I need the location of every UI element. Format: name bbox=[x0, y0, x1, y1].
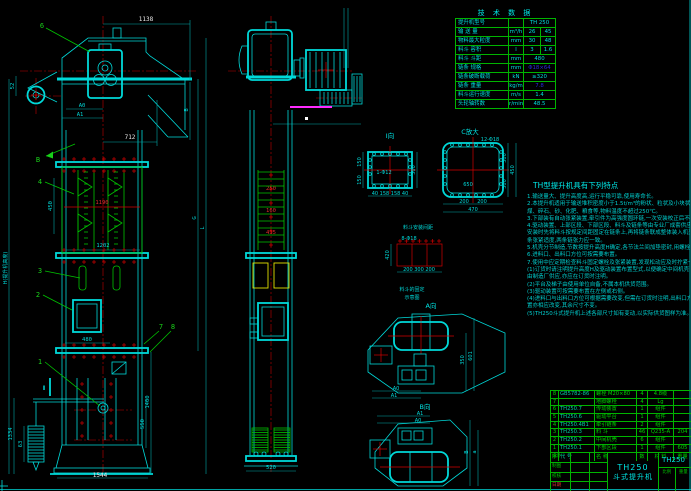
tech-label: 链条 规格 bbox=[456, 64, 509, 72]
bom-no: 4 bbox=[551, 422, 559, 429]
cad-drawing-canvas: 1138 712 A0 A1 52 B G L H(提升机高度) 450 119… bbox=[0, 0, 691, 491]
tech-table-row: 料斗 斗距mm480 bbox=[456, 54, 555, 63]
bom-qty: 4 bbox=[637, 391, 648, 398]
tech-unit: kg/m bbox=[509, 82, 524, 90]
title-block-signature-grid: 设计制图校核日期 bbox=[551, 453, 608, 491]
bom-row: 6TH250.7传动装置1组件 bbox=[551, 405, 691, 413]
title-block-sign-row: 日期 bbox=[551, 482, 607, 491]
detail-c-dim: 200 bbox=[459, 199, 469, 205]
dim-52: 52 bbox=[10, 83, 16, 90]
scale-label: 比例 bbox=[659, 468, 676, 491]
technical-data-title: 技 术 数 据 bbox=[455, 8, 556, 18]
view-b-dim-a: a bbox=[472, 450, 478, 453]
detail-c-dim: 200 bbox=[477, 199, 487, 205]
balloon-4: 4 bbox=[38, 178, 42, 186]
sign-cell bbox=[571, 463, 590, 472]
bom-code bbox=[559, 399, 595, 406]
bom-material: 组件 bbox=[648, 422, 674, 429]
note-line: 2.本提升机适用于输送堆积密度小于1.5t/m³的粉状、粒状及小块状无磨琢性、半… bbox=[527, 201, 690, 208]
bom-name: 牵引链条 bbox=[595, 422, 637, 429]
tech-value: TH 250 bbox=[524, 19, 555, 27]
sign-cell bbox=[571, 473, 590, 482]
bom-material: 组件 bbox=[648, 414, 674, 421]
bom-no: 1 bbox=[551, 445, 559, 452]
tech-table-row: 输 送 量m³/h2645 bbox=[456, 27, 555, 36]
dim-height-h: H(提升机高度) bbox=[2, 252, 9, 285]
detail-i-dim: 150 bbox=[357, 175, 363, 185]
tech-table-row: 料斗运行速度m/s1.4 bbox=[456, 90, 555, 99]
tech-value: 30 bbox=[524, 37, 541, 45]
balloon-6: 6 bbox=[40, 22, 44, 30]
detail-c-dim: 450 bbox=[510, 165, 516, 175]
balloon-7: 7 bbox=[159, 323, 163, 331]
feature-notes-heading: TH型提升机具有下列特点 bbox=[533, 180, 690, 191]
bom-code: TH250.6 bbox=[559, 414, 595, 421]
bom-code: TH250.3 bbox=[559, 429, 595, 436]
tech-label: 输 送 量 bbox=[456, 28, 509, 36]
technical-data-table: 技 术 数 据 提升机型号TH 250输 送 量m³/h2645物料最大粒度mm… bbox=[455, 8, 556, 109]
title-block: 设计制图校核日期 TH250 斗式提升机 TH250 比例 重量 bbox=[550, 452, 691, 491]
bom-material: 组件 bbox=[648, 437, 674, 444]
sign-cell bbox=[590, 463, 608, 472]
dim-550: 550 bbox=[140, 419, 146, 429]
detail-i-dim: 150 bbox=[357, 157, 363, 167]
bom-no: 6 bbox=[551, 406, 559, 413]
balloon-3: 3 bbox=[38, 267, 42, 275]
product-name: 斗式提升机 bbox=[613, 472, 653, 482]
tech-unit: r/min bbox=[509, 100, 524, 108]
tech-value: 1.6 bbox=[541, 46, 555, 54]
tech-label: 头轮轴转数 bbox=[456, 100, 509, 108]
bom-no: 8 bbox=[551, 391, 559, 398]
bom-material: 4.8级 bbox=[648, 391, 674, 398]
bucket-fix-note-1: 料斗的固定 bbox=[399, 286, 424, 293]
sign-label: 设计 bbox=[551, 453, 571, 462]
bom-row: 7地脚螺栓4Lg bbox=[551, 398, 691, 406]
detail-c-hole-note: 12-Φ18 bbox=[481, 137, 499, 143]
bom-row: 4TH250.4B1牵引链条2组件 bbox=[551, 421, 691, 429]
view-b-dim-b: B bbox=[464, 450, 470, 454]
bom-qty: 46 bbox=[637, 429, 648, 436]
bom-material: Lg bbox=[648, 399, 674, 406]
detail-i-dim: 300 bbox=[411, 165, 417, 175]
bucket-pitch-label: 料斗安装间距 bbox=[403, 224, 433, 231]
bom-qty: 6 bbox=[637, 437, 648, 444]
tech-label: 物料最大粒度 bbox=[456, 37, 509, 45]
tech-unit: m/s bbox=[509, 91, 524, 99]
detail-c-dim: 470 bbox=[468, 207, 478, 213]
note-line: (5)TH250斗式提升机上述各部尺寸如有变动,以实际供货图样为准。 bbox=[527, 311, 690, 318]
note-line: 条张紧适度,两条链张力应一致。 bbox=[527, 238, 690, 245]
detail-c-dim: 650 bbox=[463, 182, 473, 188]
bill-of-materials: 8GB5782-86螺栓 M20×8044.8级7地脚螺栓4Lg6TH250.7… bbox=[550, 390, 691, 461]
bom-code: GB5782-86 bbox=[559, 391, 595, 398]
tech-value: 3 bbox=[524, 46, 541, 54]
title-block-sign-row: 校核 bbox=[551, 473, 607, 483]
tech-value: Φ18×64 bbox=[524, 64, 555, 72]
detail-i-label: Ⅰ向 bbox=[386, 131, 394, 140]
view-arrow-b: B bbox=[36, 156, 40, 164]
balloon-8: 8 bbox=[171, 323, 175, 331]
tech-unit: mm bbox=[509, 37, 524, 45]
bom-no: 5 bbox=[551, 414, 559, 421]
tech-value: 45 bbox=[541, 28, 555, 36]
title-block-name-cell: TH250 斗式提升机 bbox=[608, 453, 659, 491]
tech-unit: l bbox=[509, 46, 524, 54]
note-line: 由制造厂供应,亦应在订货时注明。 bbox=[527, 274, 690, 281]
tech-unit: m³/h bbox=[509, 28, 524, 36]
sign-cell bbox=[590, 473, 608, 482]
middle-elevation-view: 250 160 435 520 bbox=[228, 8, 362, 474]
tech-table-row: 料斗 容积l31.6 bbox=[456, 45, 555, 54]
dim-160: 160 bbox=[266, 208, 276, 214]
detail-views: Ⅰ向 1-Φ12 150 150 300 40 158 158 40 C放大 1… bbox=[357, 127, 516, 486]
bom-code: TH250.1 bbox=[559, 445, 595, 452]
tech-value: 7.8 bbox=[524, 82, 555, 90]
view-a-dim-350: 350 bbox=[460, 355, 466, 365]
tech-label: 料斗 容积 bbox=[456, 46, 509, 54]
tech-table-row: 链条 重量kg/m7.8 bbox=[456, 81, 555, 90]
tech-label: 料斗运行速度 bbox=[456, 91, 509, 99]
bom-row: 5TH250.6驱动平台1组件 bbox=[551, 413, 691, 421]
dim-head-width: 712 bbox=[125, 134, 136, 141]
view-a-dim-601: 601 bbox=[468, 351, 474, 361]
dim-base-width: 1544 bbox=[93, 472, 108, 479]
note-line: 安装时先将料斗按规定间距固定在链条上,再将链条联成整体装入机壳内,最后调整张紧装… bbox=[527, 230, 690, 237]
bom-name: 料 斗 bbox=[595, 429, 637, 436]
bom-row: 2TH250.2中间机壳6组件 bbox=[551, 436, 691, 444]
note-line: 7.使用中应定期检查料斗固定螺栓及张紧装置,发现松动应及时拧紧一次 bbox=[527, 260, 690, 267]
title-block-sign-row: 制图 bbox=[551, 463, 607, 473]
weight-label: 重量 bbox=[676, 468, 691, 491]
generated-hatch-marks bbox=[28, 52, 502, 459]
bom-code: TH250.4B1 bbox=[559, 422, 595, 429]
sign-label: 制图 bbox=[551, 463, 571, 472]
feature-notes-lines: 1.输送量大、提升高度高,运行平稳可靠,使用寿命长。2.本提升机适用于输送堆积密… bbox=[527, 194, 690, 318]
bom-no: 3 bbox=[551, 429, 559, 436]
sign-cell bbox=[571, 453, 590, 462]
view-b-dim-a1: A1 bbox=[417, 411, 424, 417]
bom-row: 1TH250.1下部区段1组件605 bbox=[551, 444, 691, 452]
dim-1400: 1400 bbox=[145, 395, 151, 408]
detail-i-hole-note: 1-Φ12 bbox=[376, 170, 391, 176]
note-line: 置亦相应改变,其余尺寸不变。 bbox=[527, 303, 690, 310]
bom-qty: 2 bbox=[637, 422, 648, 429]
dim-63: 63 bbox=[18, 441, 24, 448]
bom-name: 中间机壳 bbox=[595, 437, 637, 444]
bom-name: 螺栓 M20×80 bbox=[595, 391, 637, 398]
bom-material: Q235-A bbox=[648, 429, 674, 436]
tech-table-row: 链条 规格mmΦ18×64 bbox=[456, 63, 555, 72]
bom-weight: 605 bbox=[674, 445, 691, 452]
tech-value: 480 bbox=[524, 55, 555, 63]
dim-1190: 1190 bbox=[95, 200, 108, 206]
view-b-dim-a0: A0 bbox=[415, 418, 422, 424]
bucket-fix-note-2: 示意图 bbox=[404, 294, 419, 301]
dim-520: 520 bbox=[266, 465, 276, 471]
sign-cell bbox=[590, 453, 608, 462]
detail-i-dim: 40 158 158 40 bbox=[372, 191, 409, 197]
detail-c-label: C放大 bbox=[461, 127, 479, 136]
bom-qty: 4 bbox=[637, 399, 648, 406]
bom-no: 7 bbox=[551, 399, 559, 406]
tech-value: 48.5 bbox=[524, 100, 555, 108]
bom-name: 地脚螺栓 bbox=[595, 399, 637, 406]
dim-1202: 1202 bbox=[96, 243, 109, 249]
bom-row: 3TH250.3料 斗46Q235-A204 bbox=[551, 428, 691, 436]
bucket-pitch-bottom: 200 300 200 bbox=[403, 267, 435, 273]
dim-a1: A1 bbox=[77, 112, 84, 118]
note-line: 6.进料口、出料口方位可按需要布置。 bbox=[527, 252, 690, 259]
bom-qty: 1 bbox=[637, 414, 648, 421]
tech-unit: kN bbox=[509, 73, 524, 81]
tech-unit: mm bbox=[509, 55, 524, 63]
bom-weight bbox=[674, 437, 691, 444]
left-elevation-view: 1138 712 A0 A1 52 B G L H(提升机高度) 450 119… bbox=[2, 16, 206, 479]
tech-table-row: 头轮轴转数r/min48.5 bbox=[456, 99, 555, 108]
tech-table-row: 提升机型号TH 250 bbox=[456, 19, 555, 27]
tech-value: 26 bbox=[524, 28, 541, 36]
tech-label: 链条 重量 bbox=[456, 82, 509, 90]
tech-label: 料斗 斗距 bbox=[456, 55, 509, 63]
balloon-1: 1 bbox=[38, 358, 42, 366]
bom-qty: 1 bbox=[637, 445, 648, 452]
sign-label: 校核 bbox=[551, 473, 571, 482]
tech-value: 48 bbox=[541, 37, 555, 45]
tech-table-row: 链条破断载荷kN≥320 bbox=[456, 72, 555, 81]
bom-weight bbox=[674, 422, 691, 429]
feature-notes: TH型提升机具有下列特点 1.输送量大、提升高度高,运行平稳可靠,使用寿命长。2… bbox=[527, 180, 690, 388]
view-a-dim-a0: A0 bbox=[393, 386, 400, 392]
detail-c-dim: 300 bbox=[502, 153, 508, 163]
sign-cell bbox=[590, 482, 608, 491]
tech-value: 1.4 bbox=[524, 91, 555, 99]
tech-table-rows: 提升机型号TH 250输 送 量m³/h2645物料最大粒度mm3048料斗 容… bbox=[455, 18, 556, 109]
tech-label: 提升机型号 bbox=[456, 19, 509, 27]
product-model: TH250 bbox=[617, 463, 648, 472]
bom-code: TH250.7 bbox=[559, 406, 595, 413]
tech-unit bbox=[509, 19, 524, 27]
bom-name: 驱动平台 bbox=[595, 414, 637, 421]
bom-qty: 1 bbox=[637, 406, 648, 413]
dim-480: 480 bbox=[82, 337, 92, 343]
bom-material: 组件 bbox=[648, 445, 674, 452]
bom-weight: 204 bbox=[674, 429, 691, 436]
dim-g: G bbox=[192, 216, 198, 219]
note-line: 煤、碎石、砂、化肥、粮食等,物料温度不超过250℃。 bbox=[527, 209, 690, 216]
title-block-sign-row: 设计 bbox=[551, 453, 607, 463]
note-line: (2)平台及梯子由使用单位自备,不属本机供货范围。 bbox=[527, 282, 690, 289]
detail-c-dim: 300 bbox=[502, 179, 508, 189]
dim-l: L bbox=[200, 226, 206, 230]
tech-unit: mm bbox=[509, 64, 524, 72]
balloon-2: 2 bbox=[36, 291, 40, 299]
bom-weight bbox=[674, 406, 691, 413]
bom-material: 组件 bbox=[648, 406, 674, 413]
sign-label: 日期 bbox=[551, 482, 571, 491]
bom-weight bbox=[674, 414, 691, 421]
bom-name: 下部区段 bbox=[595, 445, 637, 452]
dim-1334: 1334 bbox=[8, 427, 14, 441]
tech-label: 链条破断载荷 bbox=[456, 73, 509, 81]
bom-row: 8GB5782-86螺栓 M20×8044.8级 bbox=[551, 391, 691, 398]
bom-weight bbox=[674, 399, 691, 406]
sign-cell bbox=[571, 482, 590, 491]
dim-total-width: 1138 bbox=[139, 16, 154, 23]
view-a-label: A向 bbox=[426, 301, 437, 310]
tech-value: ≥320 bbox=[524, 73, 555, 81]
dim-a0: A0 bbox=[79, 103, 86, 109]
title-block-right: TH250 比例 重量 bbox=[659, 453, 691, 491]
bom-no: 2 bbox=[551, 437, 559, 444]
view-b-label: B向 bbox=[420, 402, 431, 411]
view-a-dim-a1: A1 bbox=[391, 393, 398, 399]
tech-table-row: 物料最大粒度mm3048 bbox=[456, 36, 555, 45]
bom-weight bbox=[674, 391, 691, 398]
bom-name: 传动装置 bbox=[595, 406, 637, 413]
dim-450: 450 bbox=[48, 201, 54, 211]
bucket-pitch-height: 420 bbox=[385, 250, 391, 260]
section-mark: Ⅱ bbox=[42, 384, 45, 392]
bom-code: TH250.2 bbox=[559, 437, 595, 444]
drawing-number: TH250 bbox=[659, 453, 691, 468]
